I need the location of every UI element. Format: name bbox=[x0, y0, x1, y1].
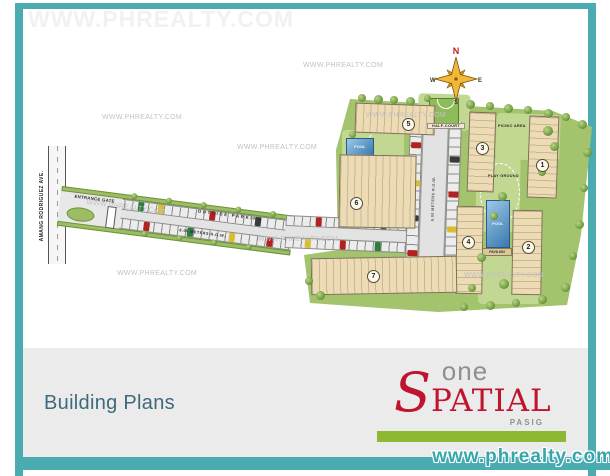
compass-e-label: E bbox=[478, 78, 482, 84]
pool-bottom-label: POOL bbox=[492, 222, 503, 226]
tree-icon bbox=[575, 220, 584, 229]
tree-icon bbox=[499, 279, 509, 289]
avenue-label: AMANG RODRIGUEZ AVE. bbox=[39, 151, 47, 261]
tree-icon bbox=[477, 253, 486, 262]
tree-icon bbox=[460, 303, 468, 311]
logo-green-bar bbox=[377, 431, 566, 442]
watermark: WWW.PHREALTY.COM bbox=[237, 144, 317, 151]
tree-icon bbox=[358, 94, 366, 102]
pool-top: POOL bbox=[346, 138, 374, 156]
tree-icon bbox=[524, 106, 532, 114]
pavilion: PAVILION bbox=[482, 248, 512, 256]
tree-icon bbox=[406, 97, 415, 106]
tree-icon bbox=[349, 131, 356, 138]
tree-icon bbox=[544, 109, 553, 118]
building-7-number: 7 bbox=[367, 270, 380, 283]
building-5-number: 5 bbox=[402, 118, 415, 131]
tree-icon bbox=[498, 192, 507, 201]
tree-icon bbox=[390, 96, 398, 104]
logo-city-label: PASIG bbox=[498, 418, 544, 427]
building-6-number: 6 bbox=[350, 197, 363, 210]
tree-icon bbox=[305, 277, 313, 285]
tree-icon bbox=[578, 120, 587, 129]
car bbox=[143, 222, 150, 232]
pool-bottom: POOL bbox=[486, 200, 510, 248]
car bbox=[407, 250, 417, 256]
building-3-number: 3 bbox=[476, 142, 489, 155]
logo-spatial-text: S PATIAL bbox=[394, 366, 552, 420]
half-court-label: HALF-COURT bbox=[427, 123, 465, 129]
tree-icon bbox=[580, 184, 588, 192]
logo-patial: PATIAL bbox=[431, 386, 552, 417]
site-url-watermark: www.phrealty.com bbox=[432, 446, 610, 468]
tree-icon bbox=[504, 104, 513, 113]
building-5 bbox=[355, 103, 436, 136]
tree-icon bbox=[538, 295, 547, 304]
car bbox=[316, 217, 322, 226]
tree-icon bbox=[374, 95, 383, 104]
tree-icon bbox=[562, 113, 570, 121]
compass-s-label: S bbox=[454, 100, 458, 104]
tree-icon bbox=[512, 299, 520, 307]
tree-icon bbox=[561, 283, 570, 292]
watermark: WWW.PHREALTY.COM bbox=[258, 236, 338, 243]
building-2-number: 2 bbox=[522, 241, 535, 254]
logo-s-swash: S bbox=[394, 366, 431, 420]
tree-icon bbox=[543, 126, 553, 136]
building-4 bbox=[455, 206, 484, 294]
watermark: WWW.PHREALTY.COM bbox=[464, 272, 544, 279]
tree-icon bbox=[550, 142, 559, 151]
watermark: WWW.PHREALTY.COM bbox=[102, 114, 182, 121]
tree-icon bbox=[569, 252, 577, 260]
compass-center bbox=[454, 77, 457, 80]
gate-island bbox=[66, 206, 96, 223]
tree-icon bbox=[486, 301, 495, 310]
car bbox=[375, 242, 381, 251]
watermark-large: WWW.PHREALTY.COM bbox=[28, 6, 294, 33]
compass-n-label: N bbox=[453, 46, 460, 56]
compass-rose-icon: N W E S bbox=[429, 44, 483, 104]
page: WWW.PHREALTY.COM WWW.PHREALTY.COM WWW.PH… bbox=[0, 0, 610, 470]
car bbox=[340, 240, 346, 249]
car bbox=[448, 191, 458, 197]
pavilion-label: PAVILION bbox=[489, 250, 505, 254]
compass-w-label: W bbox=[430, 78, 436, 84]
watermark: WWW.PHREALTY.COM bbox=[366, 112, 446, 119]
tree-icon bbox=[316, 291, 325, 300]
tree-icon bbox=[486, 102, 494, 110]
page-title: Building Plans bbox=[44, 392, 175, 415]
watermark: WWW.PHREALTY.COM bbox=[117, 270, 197, 277]
car bbox=[411, 142, 421, 148]
building-6 bbox=[338, 154, 416, 228]
building-4-number: 4 bbox=[462, 236, 475, 249]
pool-top-label: POOL bbox=[354, 145, 365, 149]
car bbox=[450, 156, 460, 162]
tree-icon bbox=[490, 212, 498, 220]
tree-icon bbox=[583, 148, 592, 157]
watermark: WWW.PHREALTY.COM bbox=[303, 62, 383, 69]
picnic-area-label: PICNIC AREA bbox=[498, 124, 540, 128]
play-ground-label: PLAY GROUND bbox=[488, 174, 530, 178]
tree-icon bbox=[468, 284, 476, 292]
building-1-number: 1 bbox=[536, 159, 549, 172]
building-7 bbox=[311, 256, 458, 296]
